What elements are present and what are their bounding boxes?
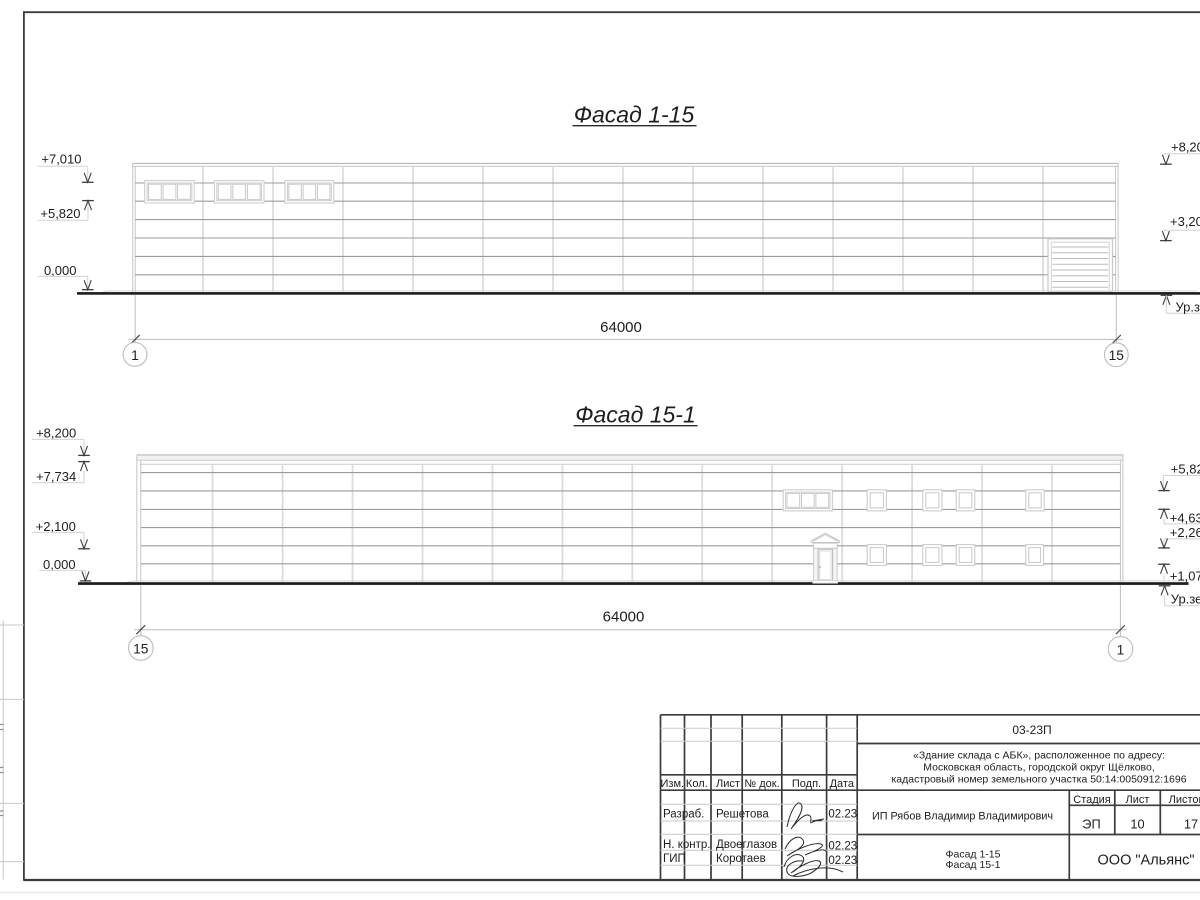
svg-text:Кол.: Кол. — [686, 778, 708, 790]
svg-text:Изм.: Изм. — [661, 778, 685, 790]
svg-text:Фасад 15-1: Фасад 15-1 — [575, 402, 696, 428]
svg-text:Московская область, городской: Московская область, городской округ Щёлк… — [923, 762, 1155, 774]
svg-text:+8,200: +8,200 — [36, 425, 76, 440]
svg-text:+8,200: +8,200 — [1171, 140, 1200, 155]
svg-text:+4,630: +4,630 — [1170, 510, 1200, 525]
svg-text:Коротаев: Коротаев — [716, 853, 766, 865]
svg-text:02.23: 02.23 — [828, 841, 857, 853]
svg-text:Лист: Лист — [1126, 794, 1150, 806]
svg-text:+2,260: +2,260 — [1170, 525, 1200, 540]
svg-text:+3,200: +3,200 — [1170, 214, 1200, 229]
svg-text:+2,100: +2,100 — [36, 519, 76, 534]
svg-text:1: 1 — [1117, 643, 1125, 658]
svg-text:15: 15 — [1109, 348, 1125, 363]
svg-text:15: 15 — [133, 642, 149, 657]
svg-text:Двоеглазов: Двоеглазов — [716, 839, 777, 851]
svg-text:Дата: Дата — [830, 778, 855, 790]
svg-text:Подп.: Подп. — [792, 778, 821, 790]
svg-text:+5,820: +5,820 — [1171, 461, 1200, 476]
svg-text:64000: 64000 — [600, 319, 642, 336]
svg-text:+1,070: +1,070 — [1170, 569, 1200, 584]
svg-text:0,000: 0,000 — [44, 263, 77, 278]
svg-text:Решетова: Решетова — [716, 808, 769, 820]
svg-text:Фасад 15-1: Фасад 15-1 — [946, 859, 1001, 871]
svg-text:17: 17 — [1184, 817, 1198, 832]
svg-text:1: 1 — [131, 348, 139, 363]
svg-text:кадастровый номер земельного у: кадастровый номер земельного участка 50:… — [891, 773, 1186, 785]
svg-text:10: 10 — [1130, 817, 1144, 832]
svg-text:№ док.: № док. — [744, 778, 779, 790]
svg-text:Лист: Лист — [716, 778, 740, 790]
svg-text:Н. контр.: Н. контр. — [663, 839, 710, 851]
svg-text:Фасад 1-15: Фасад 1-15 — [574, 102, 695, 128]
svg-text:«Здание склада с АБК», располо: «Здание склада с АБК», расположенное по … — [913, 750, 1165, 762]
svg-text:64000: 64000 — [603, 608, 645, 625]
svg-text:02.23: 02.23 — [828, 855, 857, 867]
svg-text:Листов: Листов — [1169, 794, 1200, 806]
svg-text:+5,820: +5,820 — [40, 206, 80, 221]
svg-text:Ур.земли: Ур.земли — [1176, 299, 1200, 314]
svg-text:Разраб.: Разраб. — [663, 808, 704, 820]
svg-text:ГИП: ГИП — [663, 853, 686, 865]
svg-text:+7,010: +7,010 — [41, 152, 81, 167]
svg-text:ЭП: ЭП — [1082, 817, 1100, 832]
svg-text:02.23: 02.23 — [828, 808, 857, 820]
svg-text:ИП Рябов Владимир Владимирович: ИП Рябов Владимир Владимирович — [872, 811, 1053, 823]
svg-text:Стадия: Стадия — [1073, 794, 1111, 806]
svg-text:0,000: 0,000 — [43, 557, 76, 572]
svg-text:03-23П: 03-23П — [1012, 723, 1051, 737]
svg-text:Ур.земли: Ур.земли — [1171, 591, 1200, 606]
svg-text:ООО "Альянс": ООО "Альянс" — [1098, 853, 1195, 869]
svg-text:+7,734: +7,734 — [36, 469, 76, 484]
